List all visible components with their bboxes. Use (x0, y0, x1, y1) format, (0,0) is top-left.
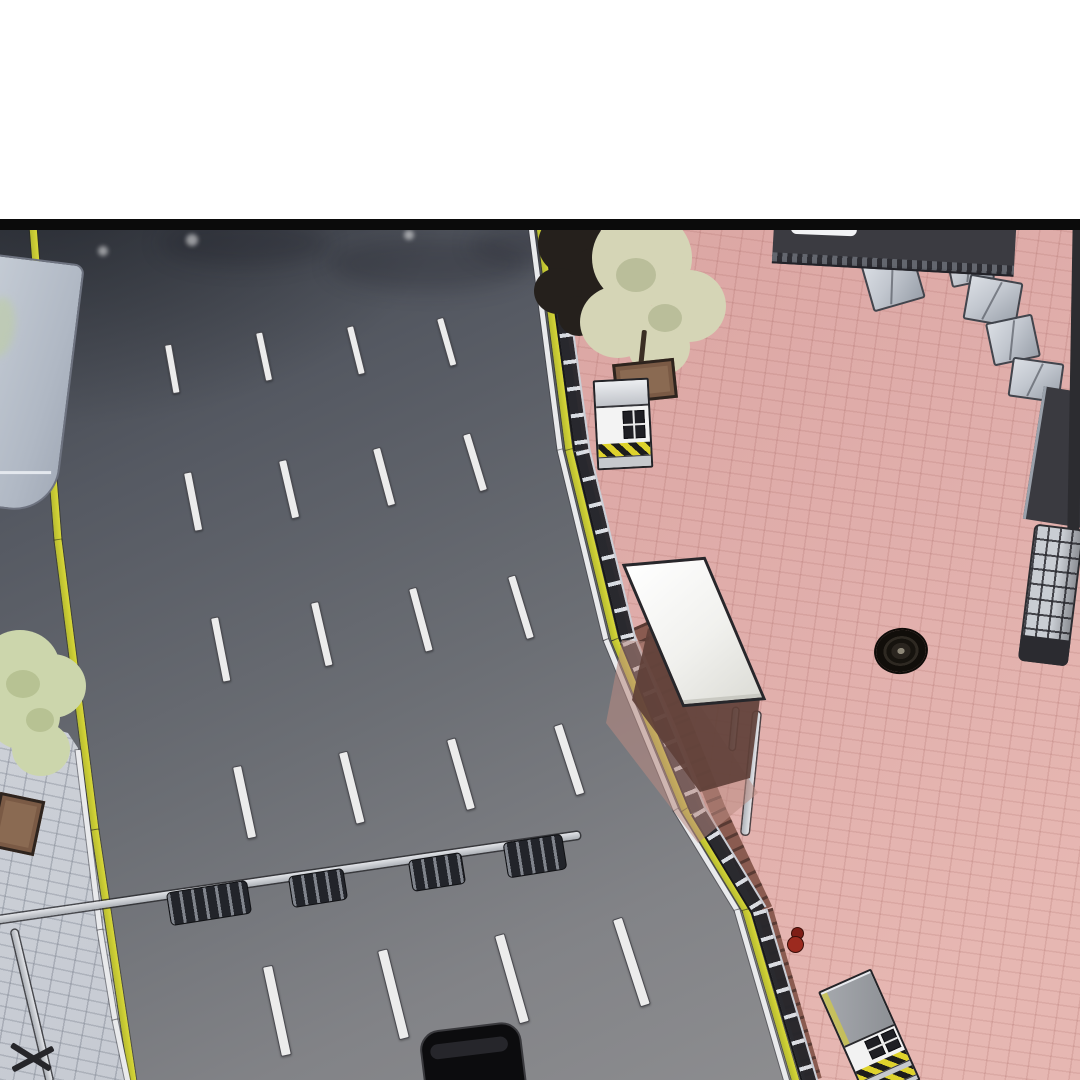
lane-marking-dash (262, 965, 292, 1057)
red-figure (788, 937, 803, 952)
lane-marking-dash (436, 317, 457, 367)
lane-marking-dash (310, 601, 334, 667)
road-reflection-dot (404, 230, 414, 240)
webtoon-panel (0, 0, 1080, 1080)
road-reflection-dot (186, 234, 198, 246)
lane-marking-dash (164, 344, 181, 395)
aerial-street-scene (0, 230, 1080, 1080)
lane-marking-dash (255, 331, 273, 382)
lane-marking-dash (446, 737, 476, 811)
lane-marking-dash (338, 751, 366, 825)
booth-roof (595, 380, 648, 409)
bike-rack (166, 880, 252, 926)
car-windshield (430, 1036, 509, 1060)
bus-roof-seam (0, 471, 51, 474)
lane-marking-dash (183, 471, 203, 532)
lane-marking-dash (408, 587, 434, 653)
lane-marking-dash (612, 917, 651, 1008)
bike-rack (408, 852, 466, 892)
guard-booth (593, 378, 654, 471)
lane-marking-dash (372, 447, 396, 507)
lane-marking-dash (346, 325, 366, 375)
panel-border-line (0, 219, 1080, 230)
road-smudge (160, 230, 330, 266)
rooftop-skylight (791, 230, 857, 236)
booth-base (599, 455, 652, 470)
lane-marking-dash (494, 933, 530, 1024)
lane-marking-dash (507, 574, 535, 640)
left-road-edge-yellow (92, 829, 137, 1080)
lane-marking-dash (210, 616, 231, 683)
lane-marking-dash (553, 723, 585, 796)
lane-marking-dash (462, 432, 488, 492)
bike-rack (503, 834, 568, 879)
road-reflection-dot (98, 246, 108, 256)
bus-roof-reflection (0, 295, 18, 358)
lane-marking-dash (377, 948, 410, 1040)
lane-marking-dash (278, 459, 300, 519)
lane-marking-dash (232, 765, 257, 839)
